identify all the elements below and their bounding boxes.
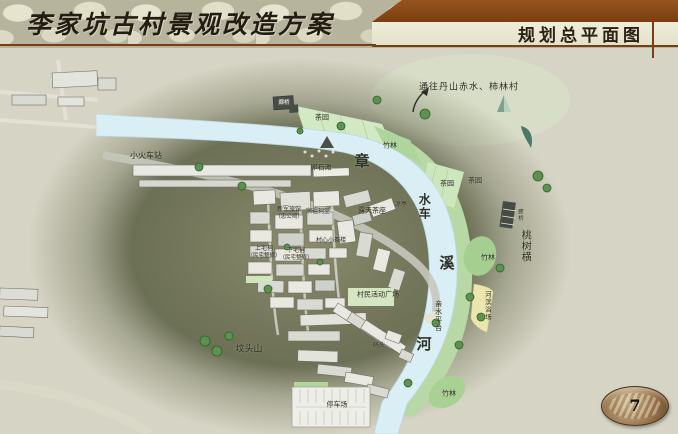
section-title: 规划总平面图 — [518, 21, 678, 46]
header-accent-bar — [372, 0, 678, 22]
title-underline — [0, 44, 376, 46]
parking-lot — [292, 387, 370, 427]
page-title: 李家坑古村景观改造方案 — [26, 5, 334, 41]
page-number-badge: 7 — [601, 386, 669, 426]
header-right-strip: 规划总平面图 — [372, 22, 678, 47]
header-vertical-rule — [652, 22, 654, 58]
site-plan-map — [0, 0, 678, 434]
page-number: 7 — [602, 396, 668, 415]
slide: 小火车站廊桥茶园竹林卵石滩章水车溪河茶园茶园凉亭露天茶座新军旅馆（忠公祠）宗祖祠… — [0, 0, 678, 434]
